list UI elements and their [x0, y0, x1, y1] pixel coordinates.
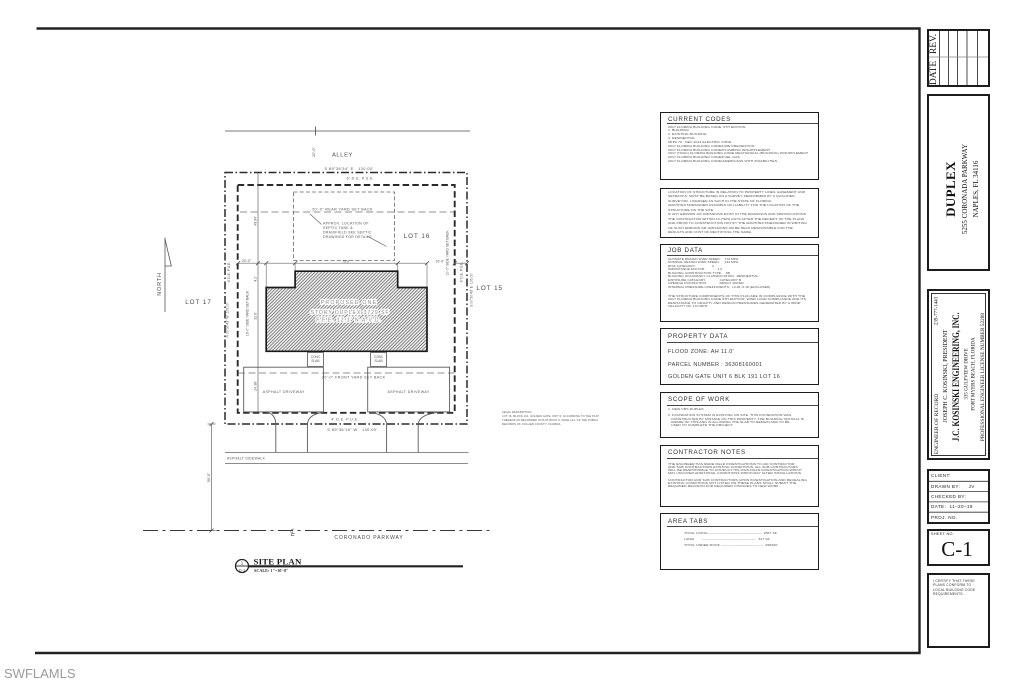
- svg-text:4.2': 4.2': [254, 276, 258, 282]
- svg-text:SLAB: SLAB: [311, 359, 319, 363]
- svg-text:NORTH: NORTH: [157, 272, 163, 295]
- svg-text:S 89°36'34" E 130.00': S 89°36'34" E 130.00': [324, 166, 373, 171]
- svg-text:6' D.E. P.U.E.: 6' D.E. P.U.E.: [347, 177, 375, 181]
- svg-text:SCALE: 1"=10'-0": SCALE: 1"=10'-0": [254, 568, 288, 573]
- svg-text:20'-0": 20'-0": [312, 147, 316, 157]
- svg-text:ALLEY: ALLEY: [332, 153, 353, 159]
- svg-text:PROPOSED ONE: PROPOSED ONE: [321, 300, 378, 306]
- svg-text:49.94': 49.94': [254, 216, 258, 226]
- svg-text:32.6': 32.6': [254, 312, 258, 320]
- svg-text:ASPHALT DRIVEWAY: ASPHALT DRIVEWAY: [263, 390, 305, 394]
- svg-text:6' D.E. P.U.E.: 6' D.E. P.U.E.: [459, 262, 463, 282]
- svg-text:DRAWINGS FOR DETAILS: DRAWINGS FOR DETAILS: [323, 235, 372, 239]
- svg-text:LOT 16, BLOCK 191, GOLDEN GATE: LOT 16, BLOCK 191, GOLDEN GATE, UNIT 6, …: [502, 414, 599, 418]
- svg-text:C-1: C-1: [239, 568, 246, 573]
- svg-text:SITE PLAN: SITE PLAN: [254, 556, 302, 566]
- svg-text:THEREOF AS RECORDED IN PLAT BO: THEREOF AS RECORDED IN PLAT BOOK 5, PAGE…: [502, 418, 598, 422]
- svg-text:16'-0": 16'-0": [436, 259, 445, 263]
- svg-text:F.F.E. 12.1' N.A.V.D.: F.F.E. 12.1' N.A.V.D.: [316, 318, 382, 324]
- svg-text:LOT 15: LOT 15: [476, 285, 503, 292]
- svg-text:CORONADO PARKWAY: CORONADO PARKWAY: [334, 535, 403, 541]
- svg-text:SLAB: SLAB: [375, 359, 383, 363]
- svg-text:APPROX. LOCATION OF: APPROX. LOCATION OF: [323, 222, 369, 226]
- svg-text:10'-0" SIDE YARD SET BACK: 10'-0" SIDE YARD SET BACK: [446, 230, 450, 276]
- svg-text:STORY DUPLEX 3729 SF: STORY DUPLEX 3729 SF: [311, 310, 390, 316]
- svg-text:20'-0": 20'-0": [242, 259, 252, 263]
- svg-text:RECORDS OF COLLIER COUNTY, FLO: RECORDS OF COLLIER COUNTY, FLORIDA.: [502, 422, 561, 426]
- svg-text:50'-0": 50'-0": [207, 472, 211, 482]
- svg-text:LEGAL DESCRIPTION:: LEGAL DESCRIPTION:: [502, 410, 532, 414]
- svg-text:S 89°36'16" W 130.00': S 89°36'16" W 130.00': [327, 427, 377, 432]
- svg-text:6' D.E. P.U.E.: 6' D.E. P.U.E.: [227, 262, 231, 282]
- svg-text:79.9': 79.9': [342, 259, 350, 263]
- svg-text:S 00°30'43" E 105.00': S 00°30'43" E 105.00': [469, 273, 473, 307]
- svg-text:ASPHALT SIDEWALK: ASPHALT SIDEWALK: [227, 457, 266, 461]
- svg-text:20'-0" REAR YARD SET BACK: 20'-0" REAR YARD SET BACK: [312, 208, 373, 212]
- svg-text:1: 1: [241, 561, 244, 566]
- svg-text:24.38': 24.38': [254, 381, 258, 391]
- svg-text:20'-0" FRONT YARD SET BACK: 20'-0" FRONT YARD SET BACK: [322, 376, 386, 380]
- svg-text:LOT 16: LOT 16: [404, 233, 431, 240]
- svg-text:4' D.E. P.U.E.: 4' D.E. P.U.E.: [331, 417, 359, 421]
- svg-text:SEPTIC TANK &: SEPTIC TANK &: [323, 226, 353, 230]
- svg-text:DRAINFIELD SEE SEPTIC: DRAINFIELD SEE SEPTIC: [323, 231, 372, 235]
- svg-text:ASPHALT DRIVEWAY: ASPHALT DRIVEWAY: [387, 390, 429, 394]
- svg-text:16'-0" SIDE YARD SET BACK: 16'-0" SIDE YARD SET BACK: [246, 290, 250, 336]
- svg-text:LOT 17: LOT 17: [185, 299, 212, 306]
- svg-text:N 00°30'43" W 105.00': N 00°30'43" W 105.00': [226, 302, 230, 337]
